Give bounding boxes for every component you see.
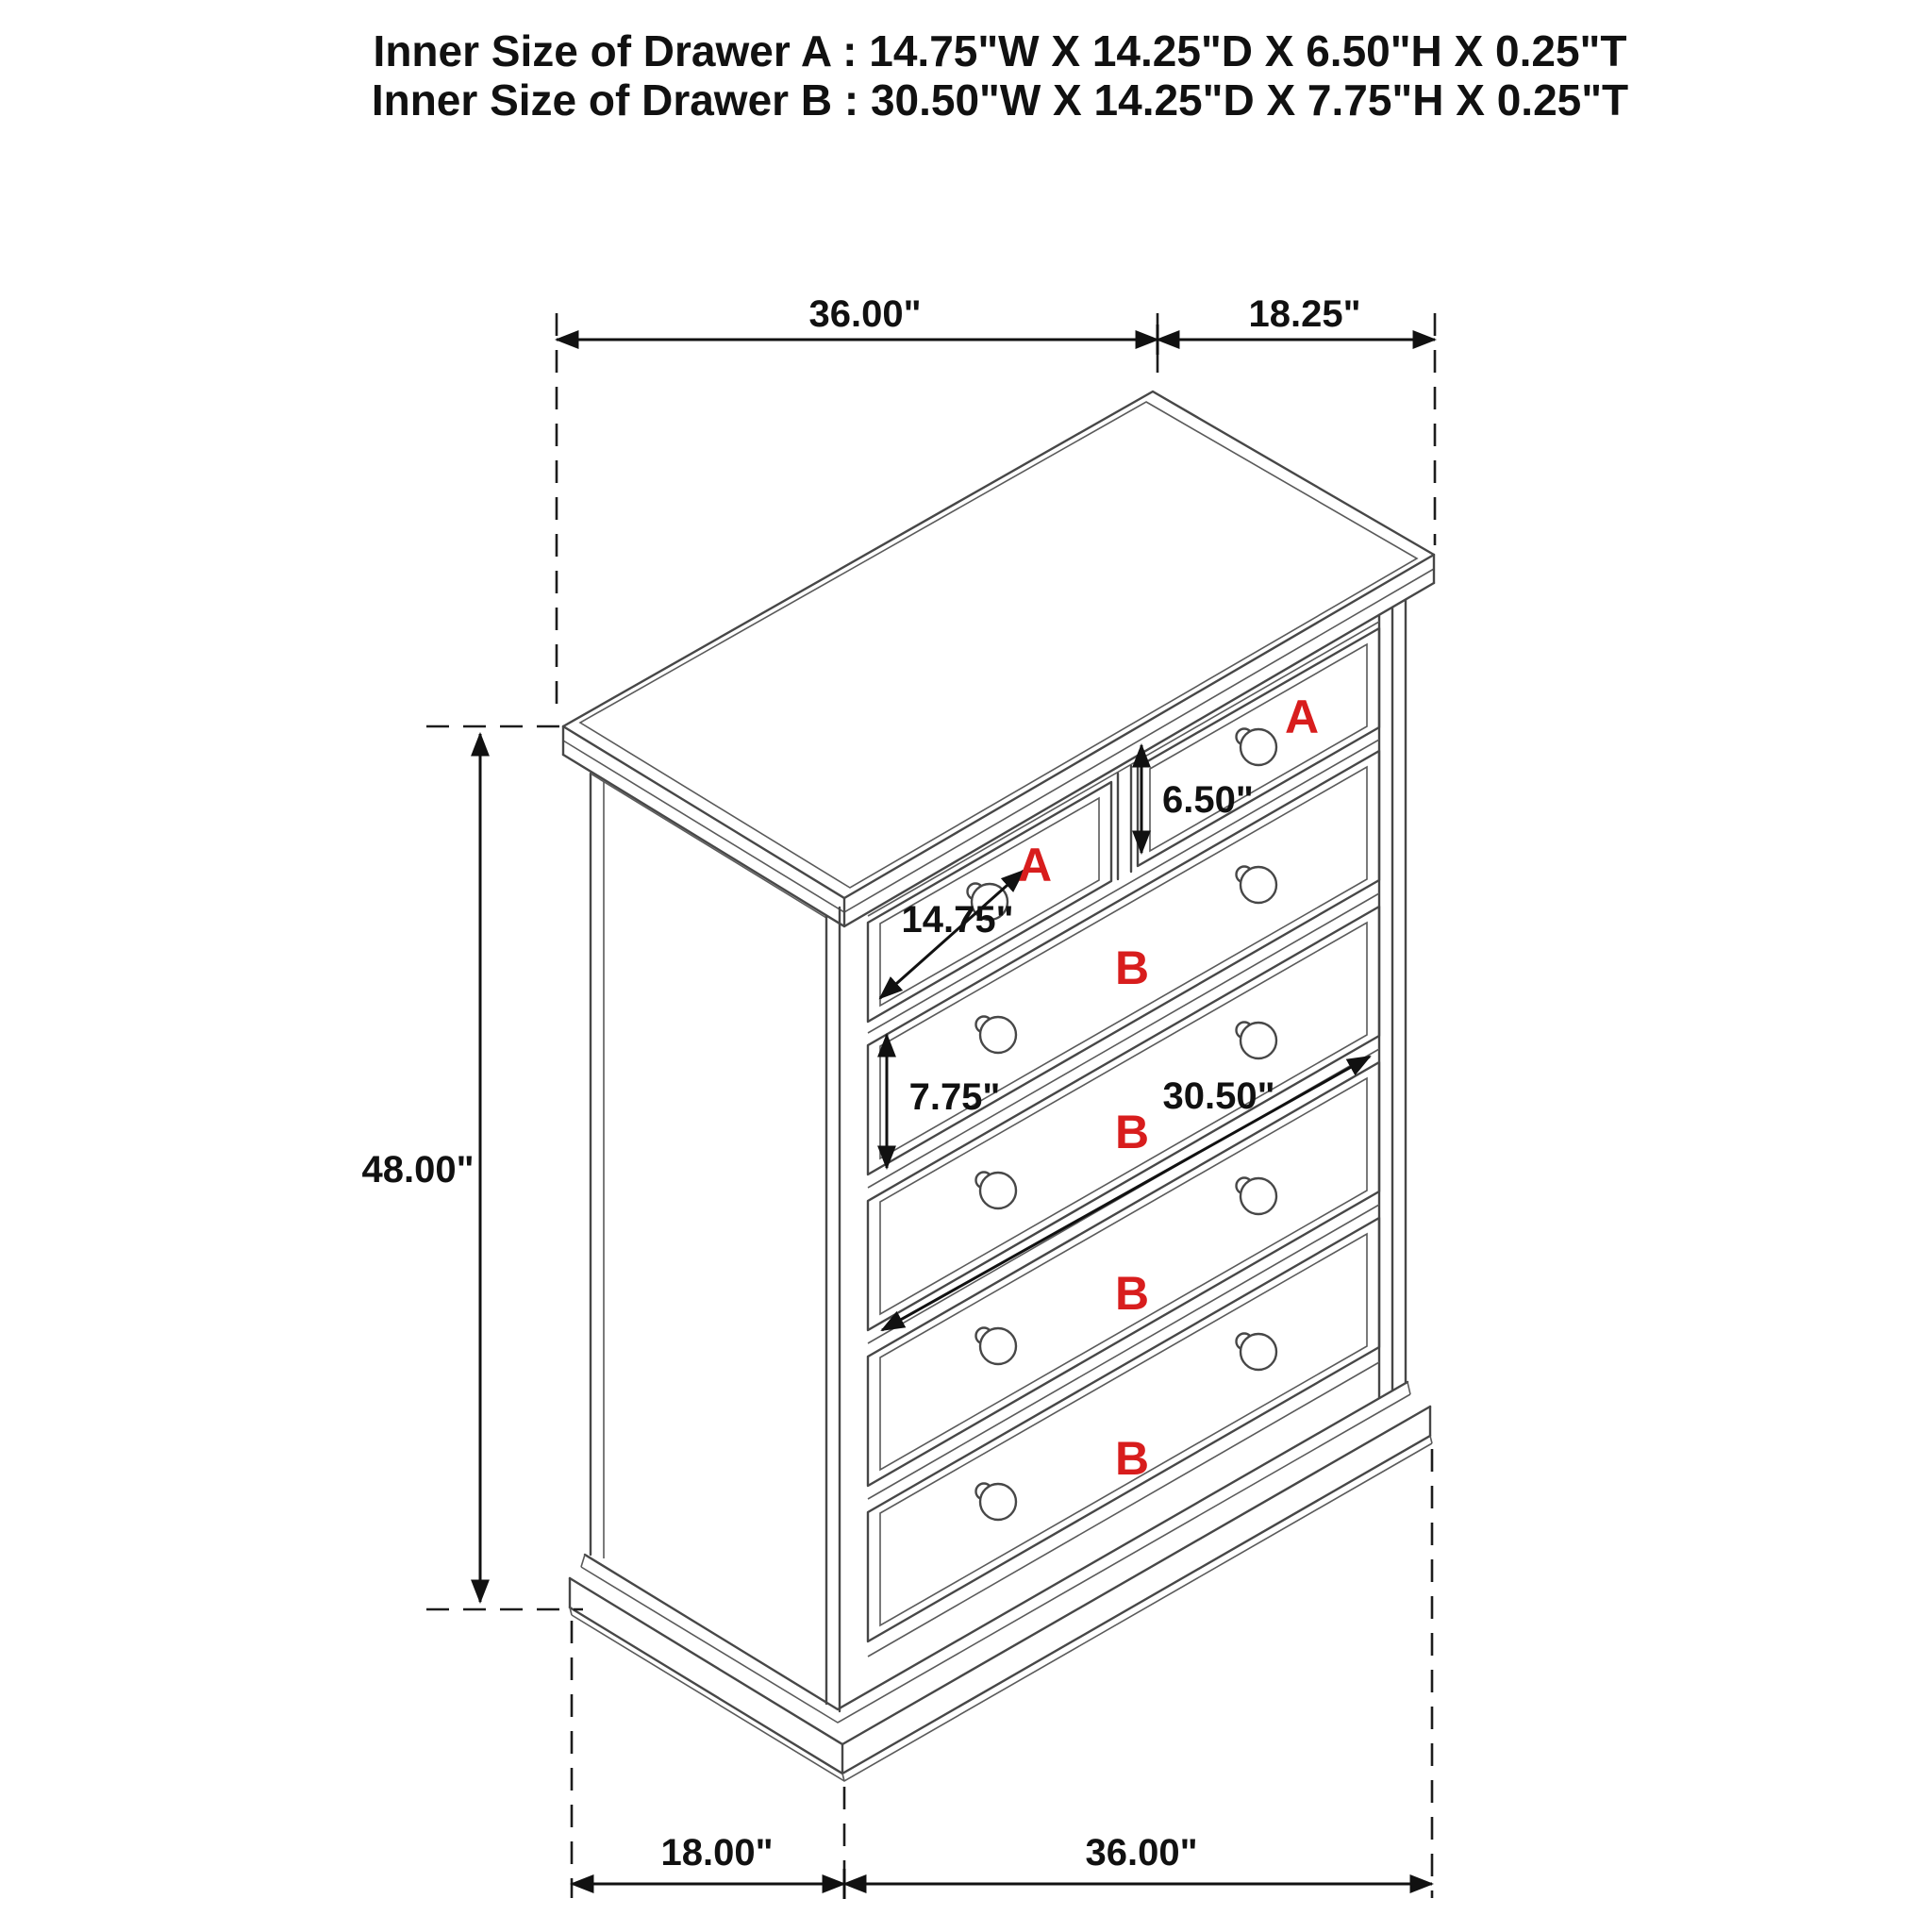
drawer-b3-label: B — [1115, 1267, 1149, 1320]
drawer-a-left-label: A — [1018, 839, 1052, 891]
plinth-corner-edges — [570, 1407, 1430, 1774]
dim-top-depth-label: 18.25" — [1248, 293, 1360, 335]
top-molding-bottomline — [563, 583, 1434, 926]
knob-icon — [1237, 1334, 1277, 1371]
knob-icon — [976, 1173, 1017, 1209]
knob-icon — [976, 1017, 1017, 1054]
dim-drawer-b-width-label: 30.50" — [1162, 1075, 1274, 1117]
dim-overall-height-label: 48.00" — [361, 1149, 474, 1191]
knob-icon — [976, 1484, 1017, 1521]
base-step-corners — [581, 1382, 1410, 1567]
base-step-top — [585, 1382, 1407, 1709]
dimension-labels: 36.00" 18.25" 48.00" 6.50" 14.75" 7.75" … — [361, 293, 1360, 1874]
front-left-corner-post — [826, 908, 840, 1711]
diagram-title-line-2: Inner Size of Drawer B : 30.50"W X 14.25… — [372, 75, 1628, 125]
knob-icon — [1237, 729, 1277, 766]
knob-icon — [1237, 867, 1277, 904]
side-panel-top-edge — [591, 774, 826, 918]
dim-base-width-label: 36.00" — [1085, 1832, 1197, 1874]
dim-drawer-b-height-label: 7.75" — [909, 1076, 1001, 1118]
dim-drawer-a-width-label: 14.75" — [901, 899, 1013, 941]
diagram-title-line-1: Inner Size of Drawer A : 14.75"W X 14.25… — [374, 26, 1627, 75]
furniture-dimension-diagram: Inner Size of Drawer A : 14.75"W X 14.25… — [0, 0, 1932, 1932]
dim-top-width-label: 36.00" — [808, 293, 921, 335]
front-right-corner-post — [1379, 600, 1406, 1398]
knob-icon — [976, 1328, 1017, 1365]
chest-of-drawers-line-drawing: Inner Size of Drawer A : 14.75"W X 14.25… — [0, 0, 1932, 1932]
dim-base-depth-label: 18.00" — [660, 1832, 773, 1874]
knob-icon — [1237, 1178, 1277, 1215]
drawer-b4-label: B — [1115, 1432, 1149, 1485]
drawer-b2-label: B — [1115, 1106, 1149, 1158]
drawer-b1-label: B — [1115, 941, 1149, 994]
dim-drawer-a-height-label: 6.50" — [1162, 779, 1254, 821]
drawer-a-right-label: A — [1285, 691, 1319, 743]
center-stile — [1118, 766, 1131, 879]
knob-icon — [1237, 1023, 1277, 1059]
